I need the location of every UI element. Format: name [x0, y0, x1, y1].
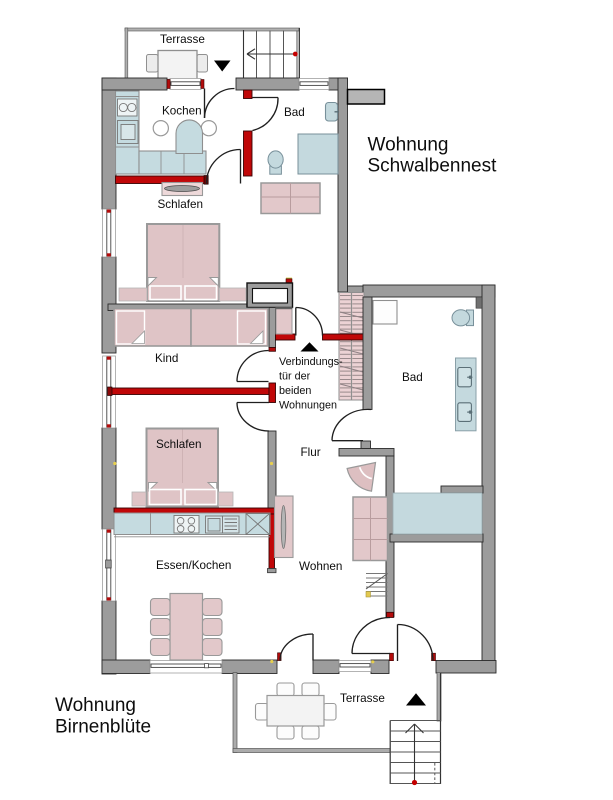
- svg-text:Schwalbennest: Schwalbennest: [368, 156, 498, 177]
- svg-text:Wohnung: Wohnung: [55, 695, 136, 716]
- svg-text:Bad: Bad: [284, 106, 305, 119]
- svg-text:Flur: Flur: [301, 446, 321, 459]
- svg-text:Bad: Bad: [402, 371, 423, 384]
- svg-text:Terrasse: Terrasse: [340, 692, 385, 705]
- svg-text:beiden: beiden: [279, 385, 311, 397]
- svg-text:Schlafen: Schlafen: [156, 438, 201, 451]
- svg-text:Essen/Kochen: Essen/Kochen: [156, 559, 231, 572]
- svg-text:tür der: tür der: [279, 371, 311, 383]
- svg-text:Wohnen: Wohnen: [299, 560, 342, 573]
- svg-text:Terrasse: Terrasse: [160, 33, 205, 46]
- svg-text:Schlafen: Schlafen: [158, 198, 203, 211]
- svg-text:Birnenblüte: Birnenblüte: [55, 717, 151, 738]
- svg-text:Kochen: Kochen: [162, 105, 202, 118]
- svg-text:Wohnungen: Wohnungen: [279, 400, 337, 412]
- svg-text:Verbindungs-: Verbindungs-: [279, 356, 343, 368]
- svg-text:Wohnung: Wohnung: [368, 135, 449, 156]
- svg-text:Kind: Kind: [155, 352, 178, 365]
